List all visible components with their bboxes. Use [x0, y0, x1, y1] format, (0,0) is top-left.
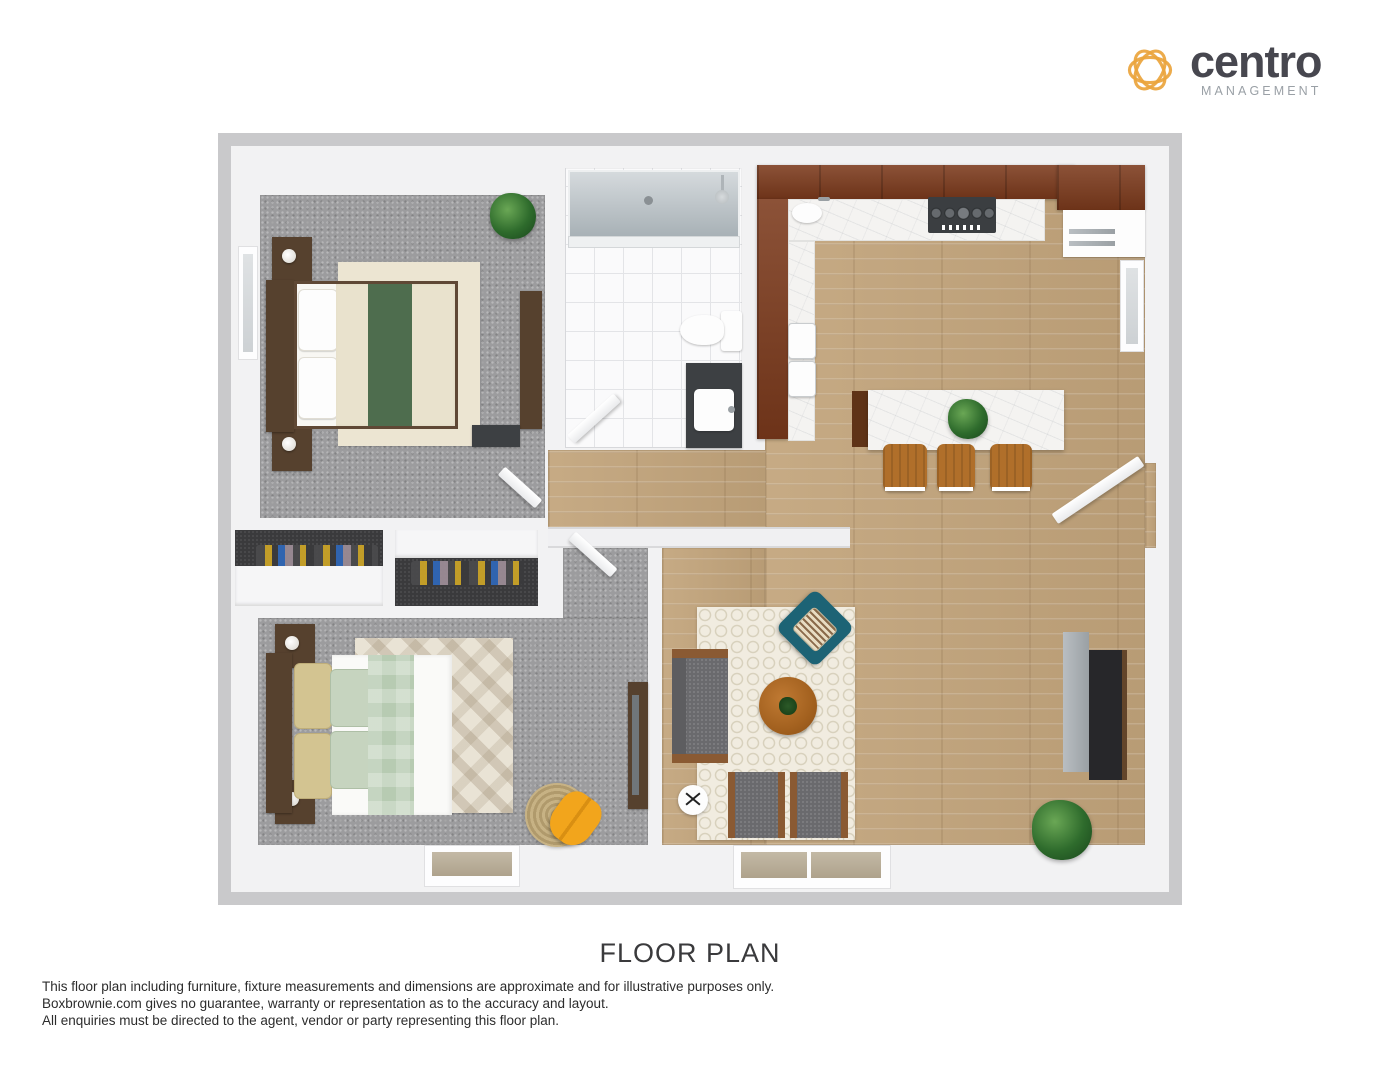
armchair-frame — [841, 772, 848, 838]
bedroom-2-bed — [292, 655, 452, 815]
tv — [1089, 650, 1127, 780]
entry-floor-patch — [1145, 463, 1156, 548]
logo-tagline-text: MANAGEMENT — [1201, 84, 1322, 98]
disclaimer-line-1: This floor plan including furniture, fix… — [42, 980, 774, 994]
bed-frame — [294, 281, 458, 429]
table-lamp — [282, 437, 296, 451]
bed-pillow — [294, 663, 332, 729]
hallway-floor — [548, 450, 766, 528]
disclaimer-line-3: All enquiries must be directed to the ag… — [42, 1014, 774, 1028]
kitchen-cabinet-top — [757, 165, 1075, 199]
kitchen-counter-top — [788, 199, 1045, 241]
closet-2-clothes-rail — [411, 561, 523, 585]
bar-stool — [883, 444, 927, 491]
logo-text: centro MANAGEMENT — [1190, 42, 1322, 98]
closet-2-shelf — [395, 530, 538, 558]
bedroom-2-headboard — [266, 653, 292, 813]
bar-stool — [937, 444, 975, 491]
centro-logo: centro MANAGEMENT — [1122, 30, 1362, 110]
armchair-seat — [797, 772, 841, 838]
shower — [568, 170, 740, 238]
dishwasher — [788, 323, 816, 359]
bedroom-2-tv — [632, 695, 639, 795]
disclaimer: This floor plan including furniture, fix… — [42, 980, 774, 1031]
fridge-handle — [1069, 229, 1115, 234]
kitchen-cabinet-left — [757, 199, 788, 439]
bedroom-1-bed — [294, 281, 458, 429]
kitchen-sink — [792, 203, 822, 223]
floor-plan-title: FLOOR PLAN — [599, 938, 780, 969]
bedroom-1-window-pane — [243, 254, 253, 352]
armchair-frame — [790, 772, 797, 838]
living-room-window-pane-left — [741, 852, 807, 878]
vanity-faucet — [728, 406, 735, 413]
shower-screen — [568, 236, 740, 248]
sofa-armrest — [672, 754, 728, 763]
armchair-frame — [728, 772, 735, 838]
bed-pillow — [294, 733, 332, 799]
toilet-tank — [721, 311, 742, 351]
kitchen-window-pane — [1126, 268, 1138, 344]
bedroom-1-dresser — [520, 291, 542, 429]
disclaimer-line-2: Boxbrownie.com gives no guarantee, warra… — [42, 997, 774, 1011]
coffee-table-plant — [779, 697, 797, 715]
living-room-plant — [1032, 800, 1092, 860]
table-lamp — [285, 636, 299, 650]
kitchen-faucet — [818, 197, 830, 201]
armchair — [790, 772, 848, 838]
armchair-seat — [735, 772, 778, 838]
centro-logo-icon — [1122, 42, 1178, 98]
floor-plan — [218, 133, 1182, 905]
bed-runner — [368, 655, 414, 815]
fridge-handle — [1069, 241, 1115, 246]
stool-base — [885, 487, 925, 491]
armchair — [728, 772, 785, 838]
armchair-frame — [778, 772, 785, 838]
island-plant — [948, 399, 988, 439]
shower-drain — [644, 196, 653, 205]
shower-head-rose — [715, 190, 729, 204]
bedroom-1-headboard — [266, 280, 294, 432]
cooktop-knobs — [942, 225, 982, 230]
bedroom-1-plant — [490, 193, 536, 239]
oven — [788, 361, 816, 397]
toilet-bowl — [680, 315, 724, 345]
tv-console — [1063, 632, 1089, 772]
island-end-cabinet — [852, 391, 868, 447]
logo-brand-text: centro — [1190, 42, 1322, 82]
closet-1-shelf — [235, 566, 383, 606]
bedroom-1-media-unit — [472, 425, 520, 447]
sofa-back — [672, 658, 686, 754]
stool-base — [992, 487, 1030, 491]
living-room-window-pane-right — [811, 852, 881, 878]
interior-wall-hall-living — [548, 527, 850, 548]
bar-stool — [990, 444, 1032, 491]
bedroom-2-window-pane — [432, 852, 512, 876]
stool-base — [939, 487, 973, 491]
kitchen-cabinet-corner — [1057, 165, 1145, 210]
table-lamp — [282, 249, 296, 263]
sofa-armrest — [672, 649, 728, 658]
throw-pillow — [792, 606, 839, 653]
sofa — [672, 649, 728, 763]
